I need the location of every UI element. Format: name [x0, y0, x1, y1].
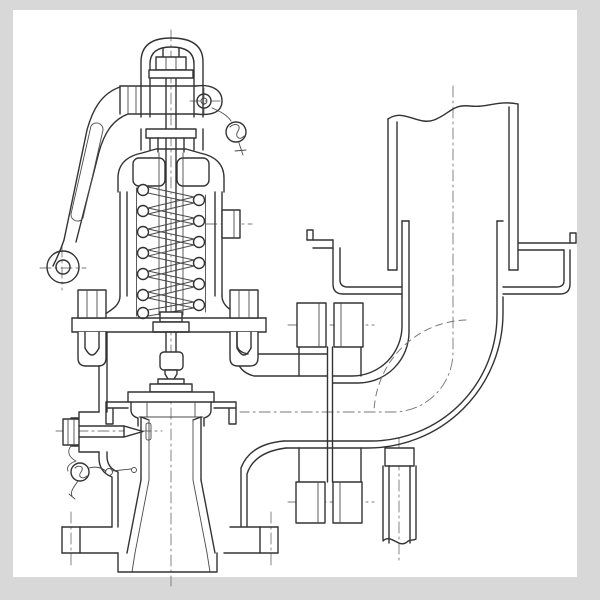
stud-nut-left: [78, 290, 106, 318]
stud-nut-right: [230, 290, 258, 318]
safety-valve-drawing: Lever-type spring-loaded safety valve wi…: [0, 0, 600, 600]
flange-lug-left: [78, 332, 106, 366]
bonnet-side-boss: [222, 210, 240, 238]
flange-bolt-lower-left: [296, 482, 325, 523]
disc-holder: [128, 392, 214, 402]
flange-bolt-upper-left: [297, 303, 326, 347]
drawing-page: Lever-type spring-loaded safety valve wi…: [0, 0, 600, 600]
top-spring-plate: [133, 158, 165, 186]
stem-collar: [160, 352, 183, 370]
spindle-washer: [146, 129, 196, 138]
bottom-spring-plate: [160, 312, 182, 322]
gag-head: [63, 419, 79, 445]
flange-bolt-upper-right: [334, 303, 363, 347]
drain-boss: [385, 448, 414, 466]
flange-lug-right: [230, 332, 258, 366]
spindle-adjusting-nut: [149, 57, 193, 78]
flange-bolt-lower-right: [333, 482, 362, 523]
